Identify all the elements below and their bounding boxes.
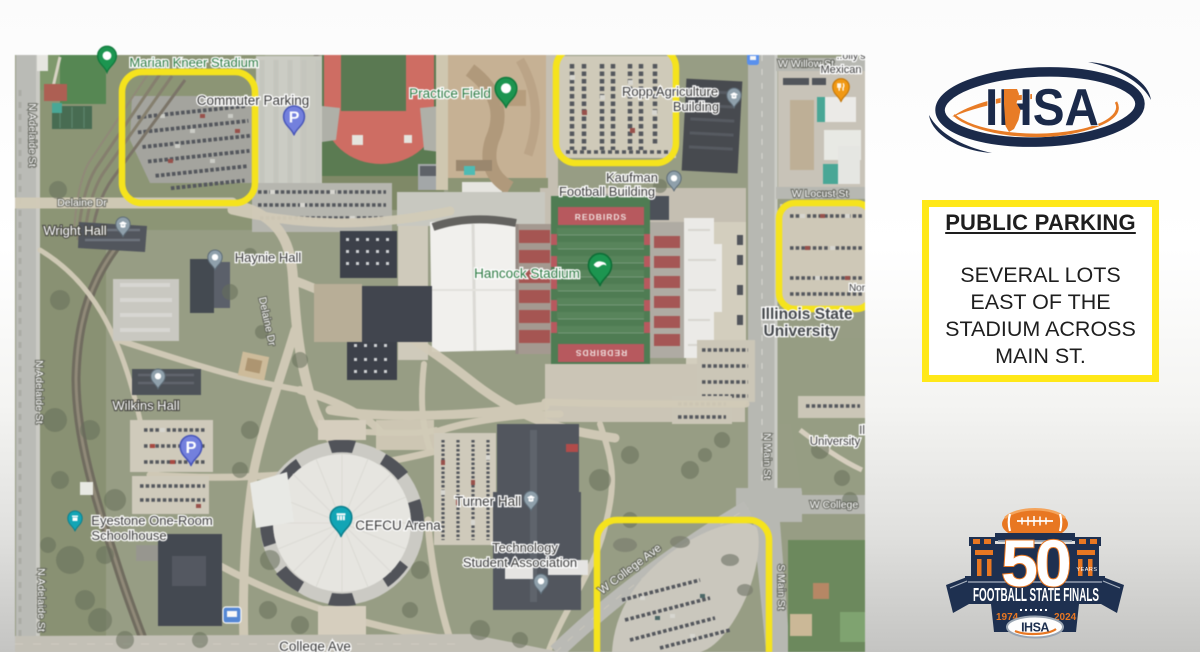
svg-text:Nor: Nor — [849, 283, 866, 294]
svg-text:N Adelaide St: N Adelaide St — [35, 568, 47, 632]
svg-text:S Main St: S Main St — [775, 564, 787, 610]
svg-text:N Adelaide St: N Adelaide St — [26, 103, 38, 167]
svg-text:Schoolhouse: Schoolhouse — [91, 528, 166, 543]
svg-text:..olly's: ..olly's — [837, 50, 866, 62]
svg-text:Kaufman: Kaufman — [606, 170, 658, 185]
svg-text:Turner Hall: Turner Hall — [455, 494, 521, 509]
svg-text:CEFCU Arena: CEFCU Arena — [355, 518, 441, 533]
svg-text:IHSA: IHSA — [1021, 621, 1049, 635]
svg-text:N Adelaide St: N Adelaide St — [33, 360, 45, 424]
svg-text:YEARS: YEARS — [1076, 567, 1097, 573]
svg-text:Ropp Agriculture: Ropp Agriculture — [622, 84, 718, 99]
svg-text:W Locust St: W Locust St — [792, 188, 849, 200]
svg-text:Marian Kneer Stadium: Marian Kneer Stadium — [129, 55, 258, 70]
svg-text:University: University — [764, 323, 839, 340]
svg-text:Wright Hall: Wright Hall — [43, 223, 106, 238]
svg-text:P: P — [289, 110, 300, 127]
svg-text:Practice Field: Practice Field — [409, 86, 491, 101]
svg-text:FOOTBALL STATE FINALS: FOOTBALL STATE FINALS — [973, 585, 1099, 605]
svg-text:Wilkins Hall: Wilkins Hall — [112, 398, 179, 413]
svg-text:P: P — [185, 439, 196, 457]
svg-text:W College: W College — [810, 499, 859, 511]
svg-text:Haynie Hall: Haynie Hall — [235, 250, 302, 265]
svg-text:University: University — [810, 436, 861, 448]
svg-text:Delaine Dr: Delaine Dr — [57, 197, 107, 209]
svg-text:Il: Il — [859, 425, 865, 437]
svg-text:Mexican: Mexican — [821, 64, 862, 76]
svg-text:Football Building: Football Building — [559, 184, 655, 199]
svg-text:Technology: Technology — [492, 540, 558, 555]
svg-text:Student Association: Student Association — [463, 555, 577, 570]
svg-text:College Ave: College Ave — [279, 639, 351, 652]
svg-text:N Main St: N Main St — [761, 433, 773, 479]
svg-text:Illinois State: Illinois State — [761, 306, 853, 323]
svg-text:IHSA: IHSA — [985, 79, 1099, 137]
svg-text:Hancock Stadium: Hancock Stadium — [474, 266, 580, 281]
svg-text:Eyestone One-Room: Eyestone One-Room — [91, 513, 212, 528]
svg-text:Building: Building — [673, 99, 719, 114]
